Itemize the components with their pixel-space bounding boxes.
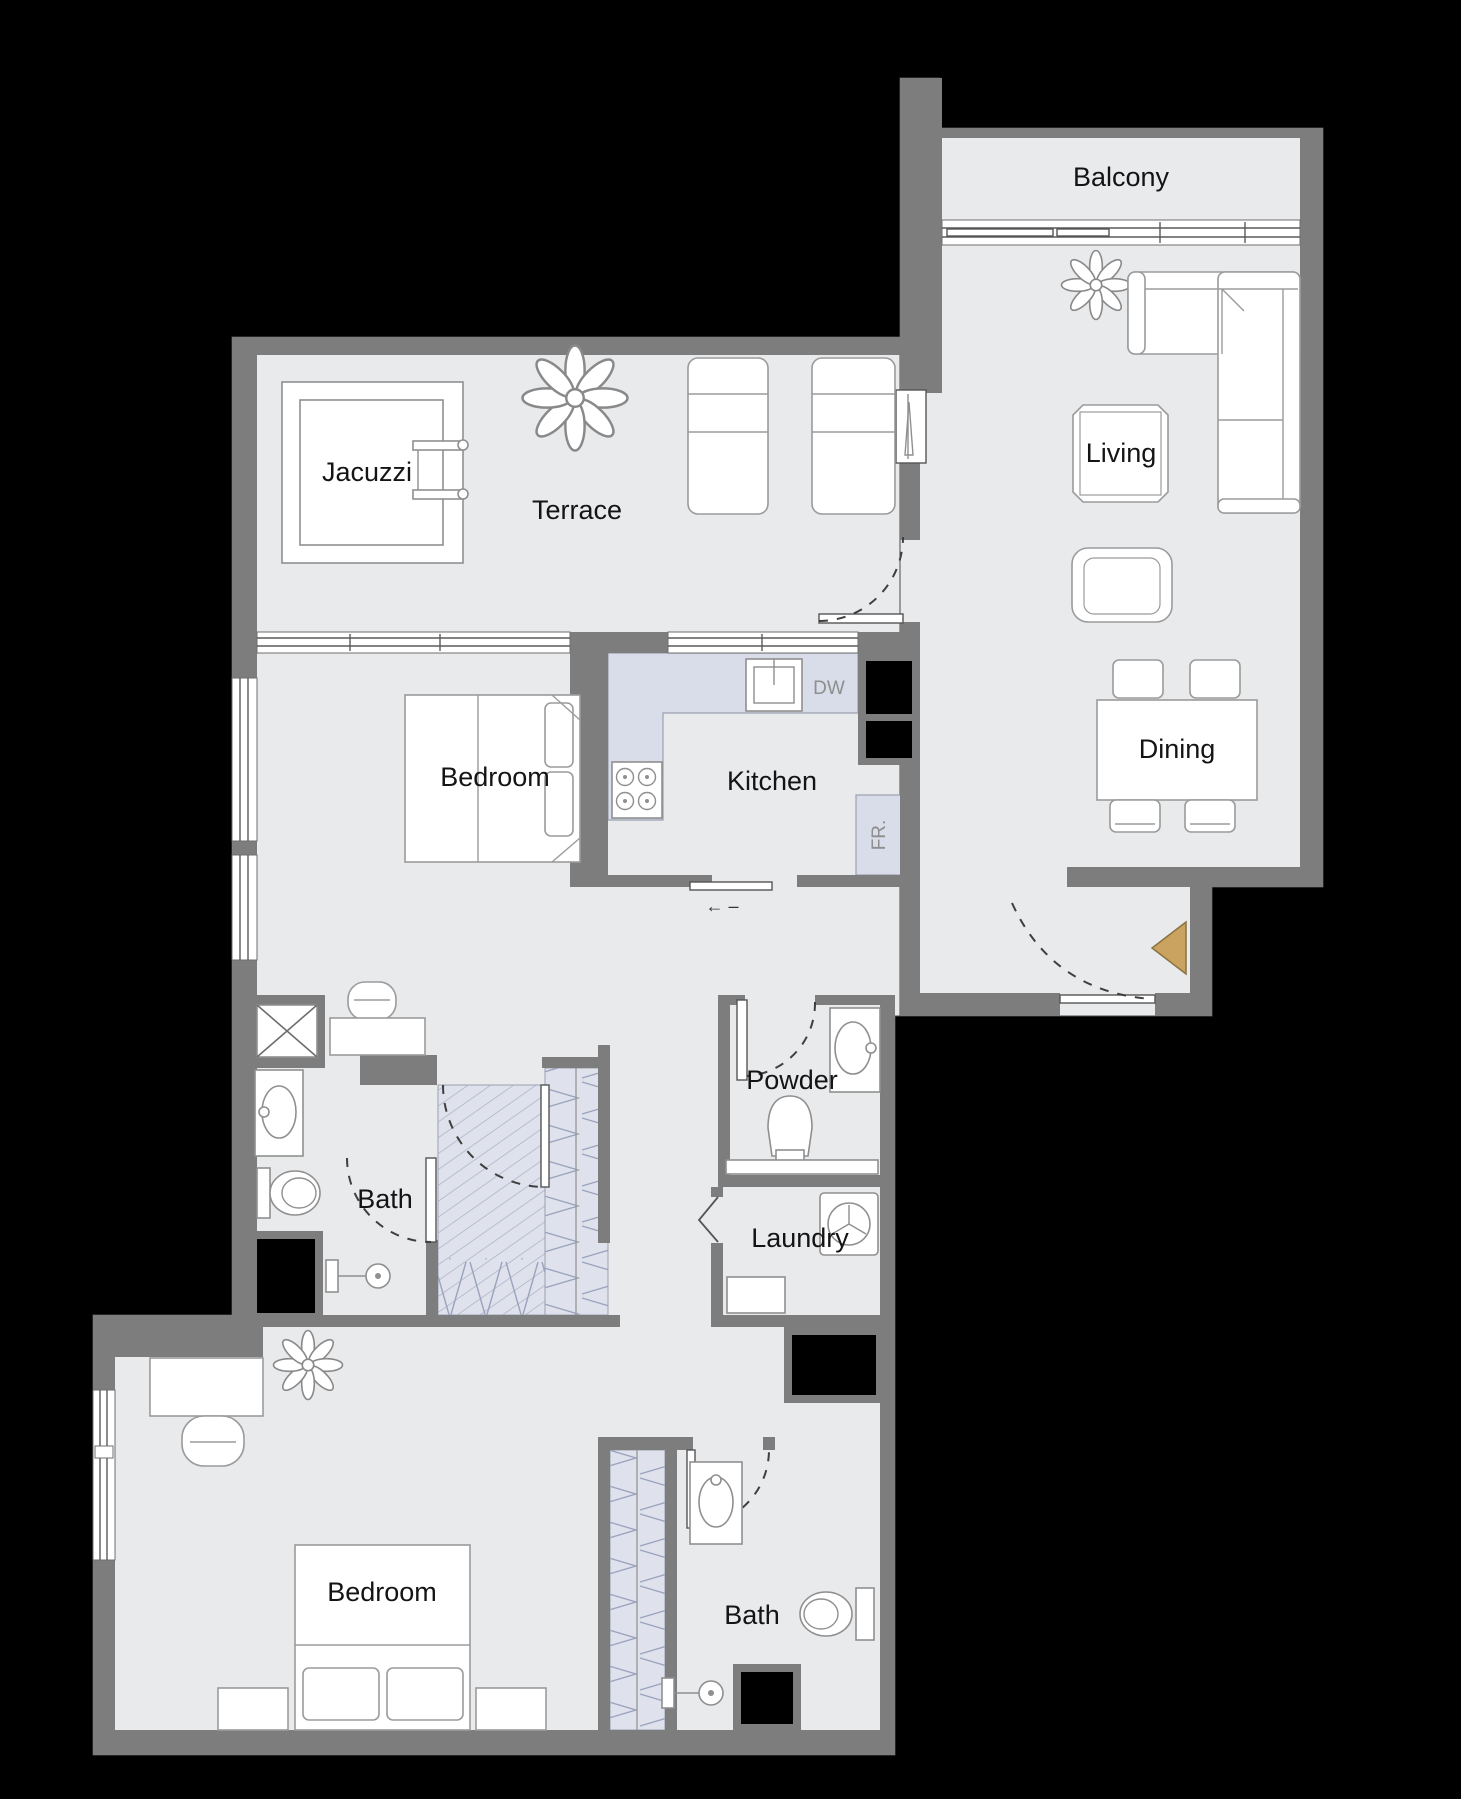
label-living: Living xyxy=(1086,438,1157,468)
balcony-window xyxy=(942,220,1300,245)
dining-chair xyxy=(1185,800,1235,832)
desk-chair xyxy=(182,1416,244,1466)
label-jacuzzi: Jacuzzi xyxy=(322,457,412,487)
floorplan-page: ← – xyxy=(0,0,1461,1799)
desk-chair xyxy=(348,982,396,1020)
side-table xyxy=(218,1688,288,1730)
bedroom2-plant-icon xyxy=(274,1331,343,1400)
bath1-toilet xyxy=(257,1168,320,1218)
powder-toilet xyxy=(768,1096,812,1164)
shower xyxy=(257,1005,317,1057)
label-dishwasher: DW xyxy=(813,678,845,699)
dining-chair xyxy=(1190,660,1240,698)
stove xyxy=(612,762,662,818)
shaft-kitchen xyxy=(858,653,920,765)
sun-lounger-1 xyxy=(688,358,768,514)
bedroom1-windows xyxy=(232,678,257,960)
label-bath-2: Bath xyxy=(724,1600,780,1630)
powder-shelf xyxy=(726,1160,878,1174)
terrace-sliding-door xyxy=(896,390,926,463)
label-terrace: Terrace xyxy=(532,495,622,525)
shaft-bath1 xyxy=(249,1231,323,1321)
label-balcony: Balcony xyxy=(1073,162,1170,192)
living-plant-icon xyxy=(1062,251,1131,320)
laundry-counter xyxy=(727,1277,785,1313)
wardrobe-bedroom2 xyxy=(610,1450,665,1730)
palm-plant-icon xyxy=(523,346,628,451)
label-kitchen: Kitchen xyxy=(727,766,817,796)
bath1-vanity xyxy=(255,1070,303,1156)
label-bath-1: Bath xyxy=(357,1184,413,1214)
shaft-corridor xyxy=(784,1327,884,1403)
sun-lounger-2 xyxy=(812,358,895,514)
armchair xyxy=(1072,548,1172,622)
label-bedroom-1: Bedroom xyxy=(440,762,550,792)
side-table xyxy=(476,1688,546,1730)
label-fridge: FR. xyxy=(869,820,890,851)
bath2-toilet xyxy=(800,1588,874,1640)
label-dining: Dining xyxy=(1139,734,1216,764)
shaft-bath2 xyxy=(733,1664,801,1732)
floorplan-drawing: ← – xyxy=(0,0,1461,1799)
dining-chair xyxy=(1113,660,1163,698)
bath2-vanity xyxy=(690,1462,742,1544)
bedroom2-window xyxy=(93,1390,115,1560)
walkin-closet xyxy=(438,1068,608,1315)
kitchen-window xyxy=(668,632,858,653)
dining-chair xyxy=(1110,800,1160,832)
pocket-door-arrow: ← – xyxy=(705,896,738,916)
label-powder: Powder xyxy=(746,1065,838,1095)
terrace-bedroom-window xyxy=(257,632,570,653)
label-bedroom-2: Bedroom xyxy=(327,1577,437,1607)
floor-left-wing xyxy=(93,337,920,1755)
label-laundry: Laundry xyxy=(751,1223,849,1253)
